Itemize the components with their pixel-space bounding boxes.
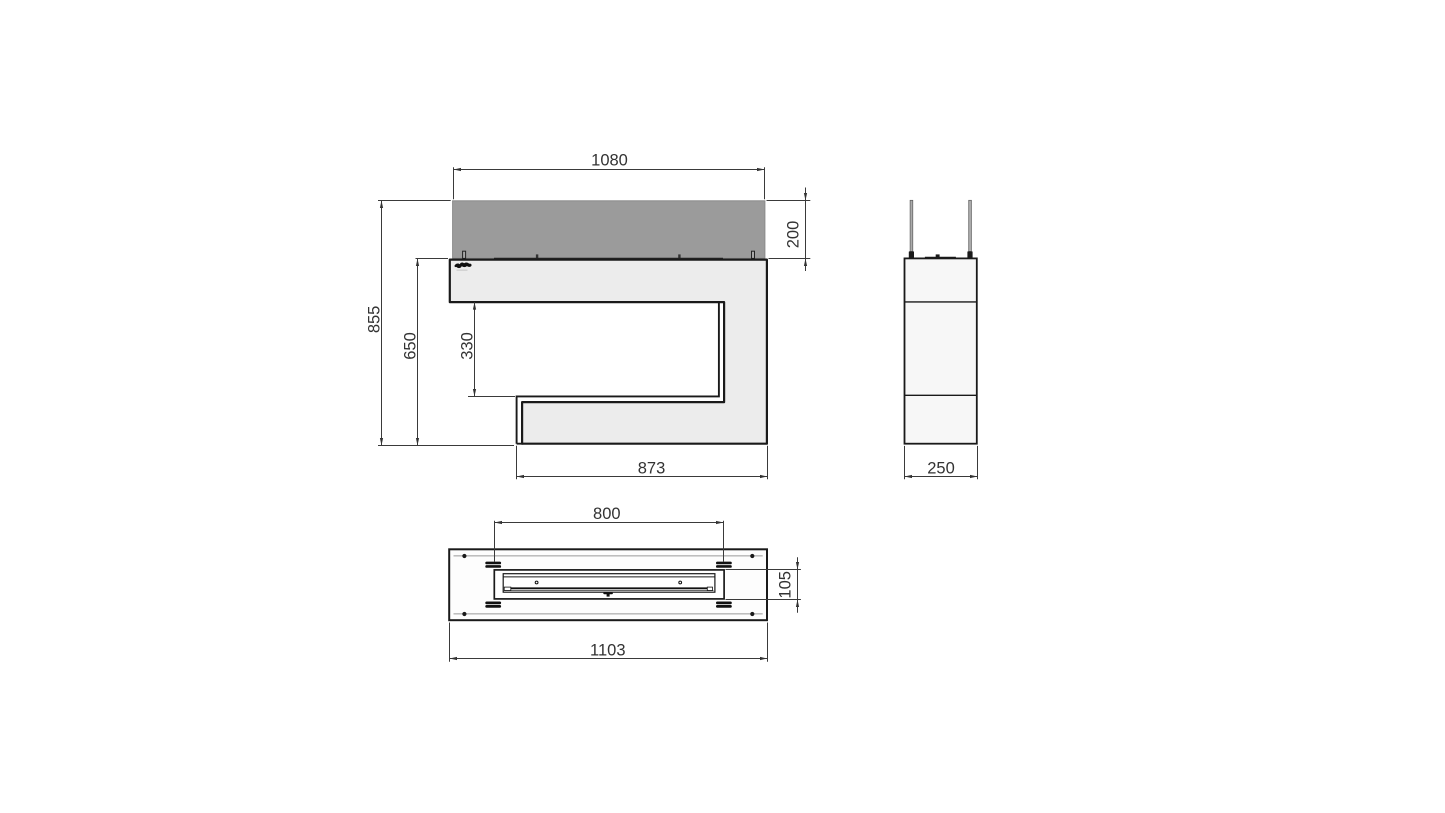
svg-text:105: 105 <box>777 571 795 599</box>
svg-text:650: 650 <box>402 332 420 360</box>
svg-text:200: 200 <box>785 221 803 249</box>
svg-text:855: 855 <box>365 306 383 334</box>
svg-text:250: 250 <box>927 459 955 477</box>
svg-text:800: 800 <box>593 505 621 523</box>
svg-text:1103: 1103 <box>590 641 625 659</box>
svg-text:330: 330 <box>459 332 477 360</box>
svg-text:873: 873 <box>638 459 666 477</box>
svg-text:1080: 1080 <box>591 152 628 170</box>
